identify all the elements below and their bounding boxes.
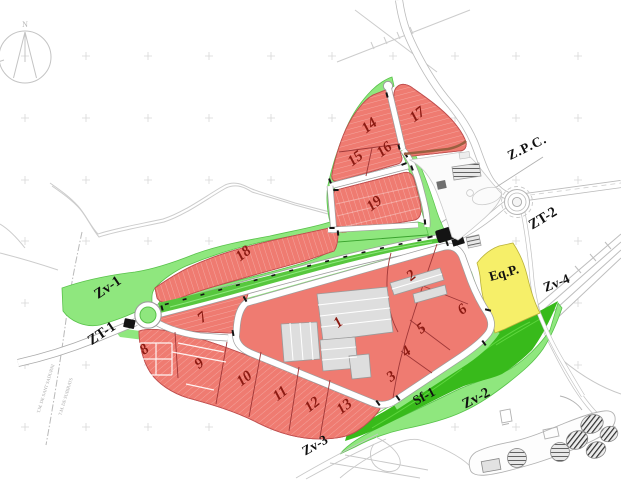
svg-text:N: N [22,20,28,29]
